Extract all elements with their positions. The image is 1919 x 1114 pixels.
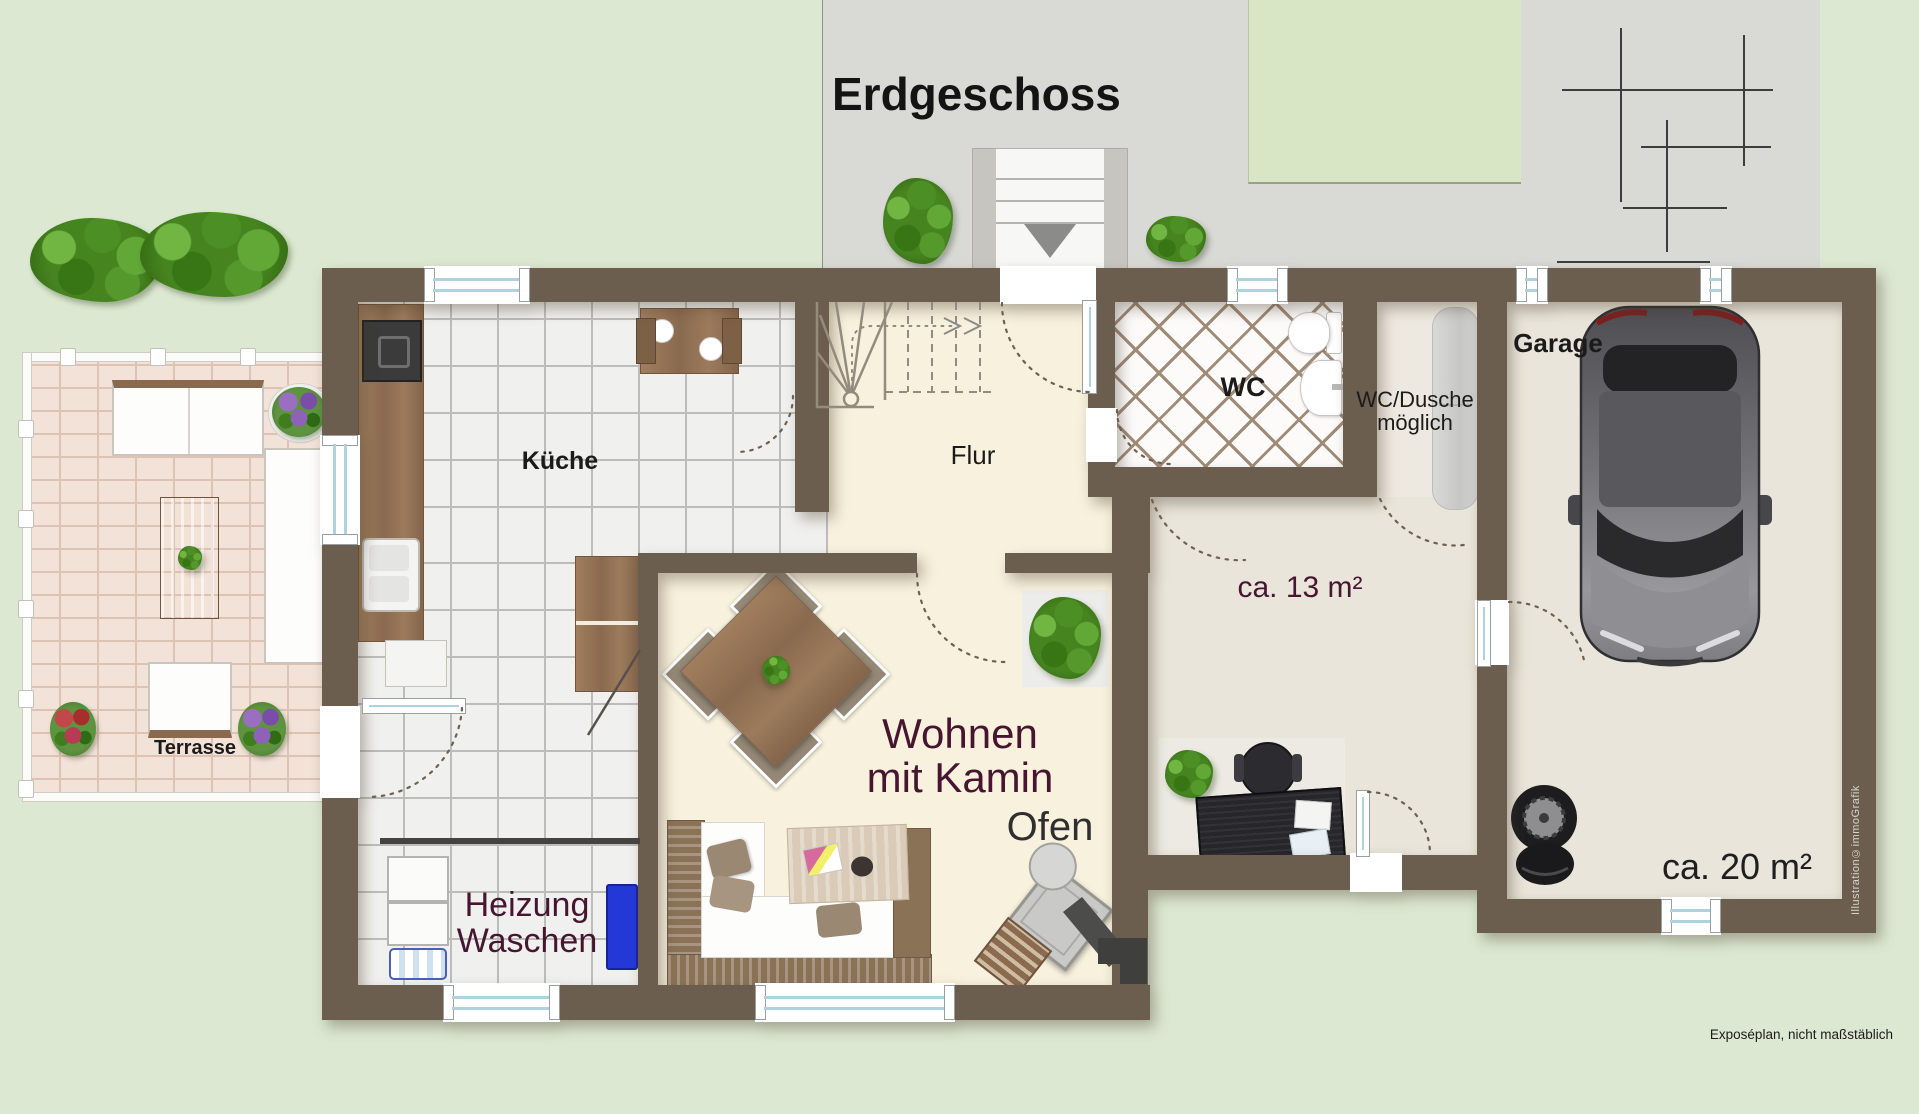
room13-area-label: ca. 13 m² xyxy=(1237,572,1362,604)
stove-label: Ofen xyxy=(1007,806,1094,848)
hallway-label: Flur xyxy=(951,442,996,469)
kitchen-label: Küche xyxy=(522,448,598,474)
garage-label: Garage xyxy=(1513,330,1603,357)
garage-area-label: ca. 20 m² xyxy=(1662,848,1812,886)
living-label: Wohnenmit Kamin xyxy=(867,712,1054,800)
illustration-credit: Illustration©immoGrafik xyxy=(1850,735,1862,915)
wc-label: WC xyxy=(1221,373,1266,401)
shower-room-label: WC/Duschemöglich xyxy=(1356,388,1473,434)
floor-plan: Erdgeschoss Terrasse xyxy=(0,0,1919,1114)
utility-label: HeizungWaschen xyxy=(457,888,597,959)
disclaimer: Exposéplan, nicht maßstäblich xyxy=(1710,1028,1893,1042)
plan-linework xyxy=(0,0,1919,1114)
